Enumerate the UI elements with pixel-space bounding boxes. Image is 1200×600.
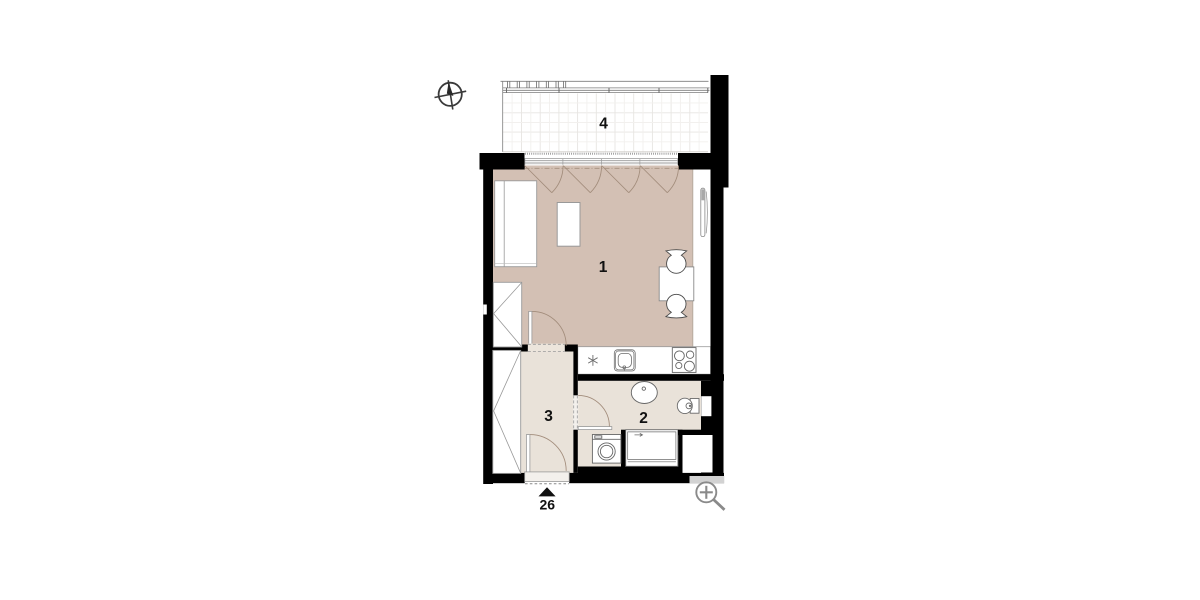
svg-text:1: 1: [599, 259, 608, 276]
svg-text:26: 26: [540, 497, 556, 513]
svg-text:2: 2: [639, 410, 648, 427]
svg-text:4: 4: [599, 116, 608, 133]
svg-text:3: 3: [544, 408, 553, 425]
